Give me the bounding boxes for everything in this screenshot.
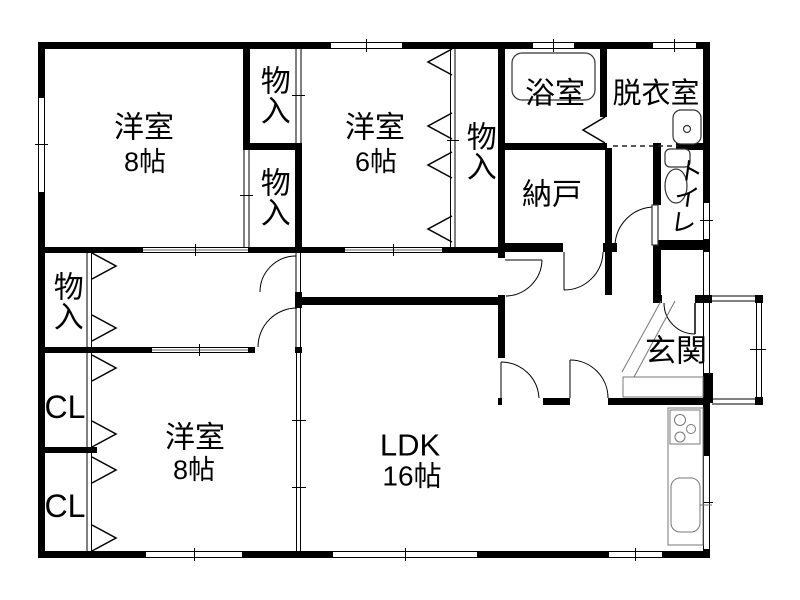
floor-plan: 洋室 8帖 物入 物入 洋室 6帖 物入 浴室 脱衣室 納戸 トイレ 物入 CL… — [0, 0, 800, 600]
door-ldk-1 — [501, 362, 539, 398]
folding-door-cl2 — [92, 457, 116, 551]
label-ldk-size: 16帖 — [382, 461, 441, 490]
closet-cl2-door-line — [87, 453, 92, 551]
fixtures — [512, 53, 712, 545]
folding-door-closet-west — [92, 253, 116, 341]
label-bedroom-sw-size: 8帖 — [173, 456, 215, 484]
label-cl-1: CL — [45, 391, 86, 425]
door-bedroom-sw — [258, 308, 297, 347]
sliding-partition-ldk-bedroom — [292, 353, 306, 551]
folding-door-bath — [583, 117, 605, 143]
label-ldk: LDK — [380, 430, 440, 463]
window-ldk-south-1 — [332, 548, 478, 561]
label-entrance: 玄関 — [645, 336, 707, 369]
doors — [258, 146, 695, 398]
label-bedroom-nw-size: 8帖 — [124, 148, 166, 176]
label-closet-top-1: 物入 — [256, 65, 288, 125]
door-hall-west — [505, 260, 542, 296]
folding-door-cl1 — [92, 355, 116, 447]
label-cl-2: CL — [45, 490, 86, 524]
entrance-porch — [712, 295, 766, 405]
closet-west-door-line — [87, 253, 92, 347]
label-closet-west: 物入 — [49, 271, 81, 331]
sliding-door-bedroom-sw — [152, 344, 248, 356]
window-ldk-south-2 — [608, 548, 663, 561]
door-entrance — [664, 303, 695, 334]
folding-door-closet-mid — [428, 49, 452, 242]
label-closet-mid: 物入 — [462, 121, 494, 181]
door-toilet — [615, 205, 658, 245]
label-bedroom-sw: 洋室 — [165, 422, 225, 454]
window-bedroom-sw — [145, 548, 243, 561]
kitchen-sink — [671, 478, 700, 532]
label-bedroom-n-size: 6帖 — [355, 148, 397, 176]
washbasin — [673, 110, 701, 144]
closet-door-top-2-panel — [240, 150, 253, 247]
sliding-door-bedroom-n — [345, 244, 442, 256]
door-ldk-2 — [570, 360, 608, 398]
sliding-door-bedroom-nw — [143, 244, 248, 256]
door-corridor-upper — [260, 256, 296, 292]
window-bedroom-nw — [35, 97, 48, 193]
closet-door-top-1-panel — [292, 49, 305, 143]
label-closet-top-2: 物入 — [256, 167, 288, 227]
window-bath — [532, 39, 575, 52]
label-storage-room: 納戸 — [522, 179, 582, 211]
label-bedroom-nw: 洋室 — [114, 112, 174, 144]
door-storage-room — [564, 252, 603, 290]
label-bedroom-n: 洋室 — [345, 112, 405, 144]
label-bath: 浴室 — [525, 78, 585, 110]
window-toilet — [700, 202, 713, 240]
window-dressing — [652, 39, 697, 52]
closet-cl1-door-line — [87, 353, 92, 447]
label-dressing-room: 脱衣室 — [612, 79, 699, 109]
window-bedroom-n — [330, 39, 403, 52]
